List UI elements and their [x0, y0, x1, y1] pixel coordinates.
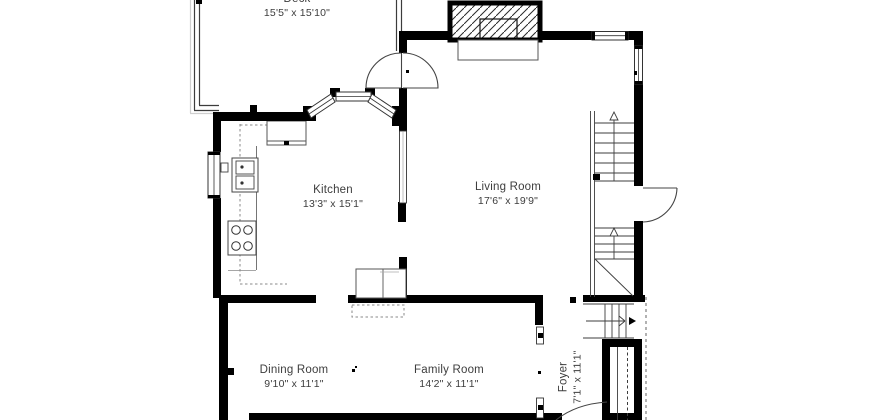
- deck-shadow: [190, 0, 214, 114]
- landing-door-icon: [643, 188, 677, 222]
- room-dims: 9'10" x 11'1": [228, 377, 360, 391]
- room-dims: 7'1" x 11'1": [571, 350, 585, 403]
- room-name: Foyer: [557, 350, 571, 403]
- room-dims: 14'2" x 11'1": [383, 377, 515, 391]
- living-right-window: [635, 46, 643, 84]
- floorplan-drawing: [0, 0, 870, 420]
- floorplan-canvas: Deck 15'5" x 15'10" Kitchen 13'3" x 15'1…: [0, 0, 870, 420]
- room-dims: 15'5" x 15'10": [227, 6, 367, 20]
- overhead-cabinet-dashed: [352, 305, 404, 317]
- staircase-entry: [583, 304, 636, 338]
- kitchen-stove: [228, 221, 256, 255]
- room-name: Living Room: [441, 180, 575, 194]
- room-dims: 17'6" x 19'9": [441, 194, 575, 208]
- staircase-basement: [618, 347, 628, 420]
- room-label-family-room: Family Room 14'2" x 11'1": [383, 363, 515, 391]
- room-dims: 13'3" x 15'1": [267, 197, 399, 211]
- fireplace: [450, 3, 540, 60]
- room-label-dining-room: Dining Room 9'10" x 11'1": [228, 363, 360, 391]
- room-name: Kitchen: [267, 183, 399, 197]
- deck-door-icon: [366, 53, 438, 88]
- kitchen-pass-through: [400, 131, 407, 203]
- staircase-main: [591, 111, 635, 297]
- kitchen-sink: [221, 158, 258, 192]
- room-name: Dining Room: [228, 363, 360, 377]
- bay-window: [307, 92, 396, 118]
- room-label-kitchen: Kitchen 13'3" x 15'1": [267, 183, 399, 211]
- room-label-foyer: Foyer 7'1" x 11'1": [536, 342, 606, 412]
- room-label-living-room: Living Room 17'6" x 19'9": [441, 180, 575, 208]
- kitchen-left-window: [208, 152, 220, 198]
- room-name: Family Room: [383, 363, 515, 377]
- room-label-deck: Deck 15'5" x 15'10": [227, 0, 367, 20]
- living-top-window: [592, 32, 628, 41]
- kitchen-cabinets: [356, 269, 406, 298]
